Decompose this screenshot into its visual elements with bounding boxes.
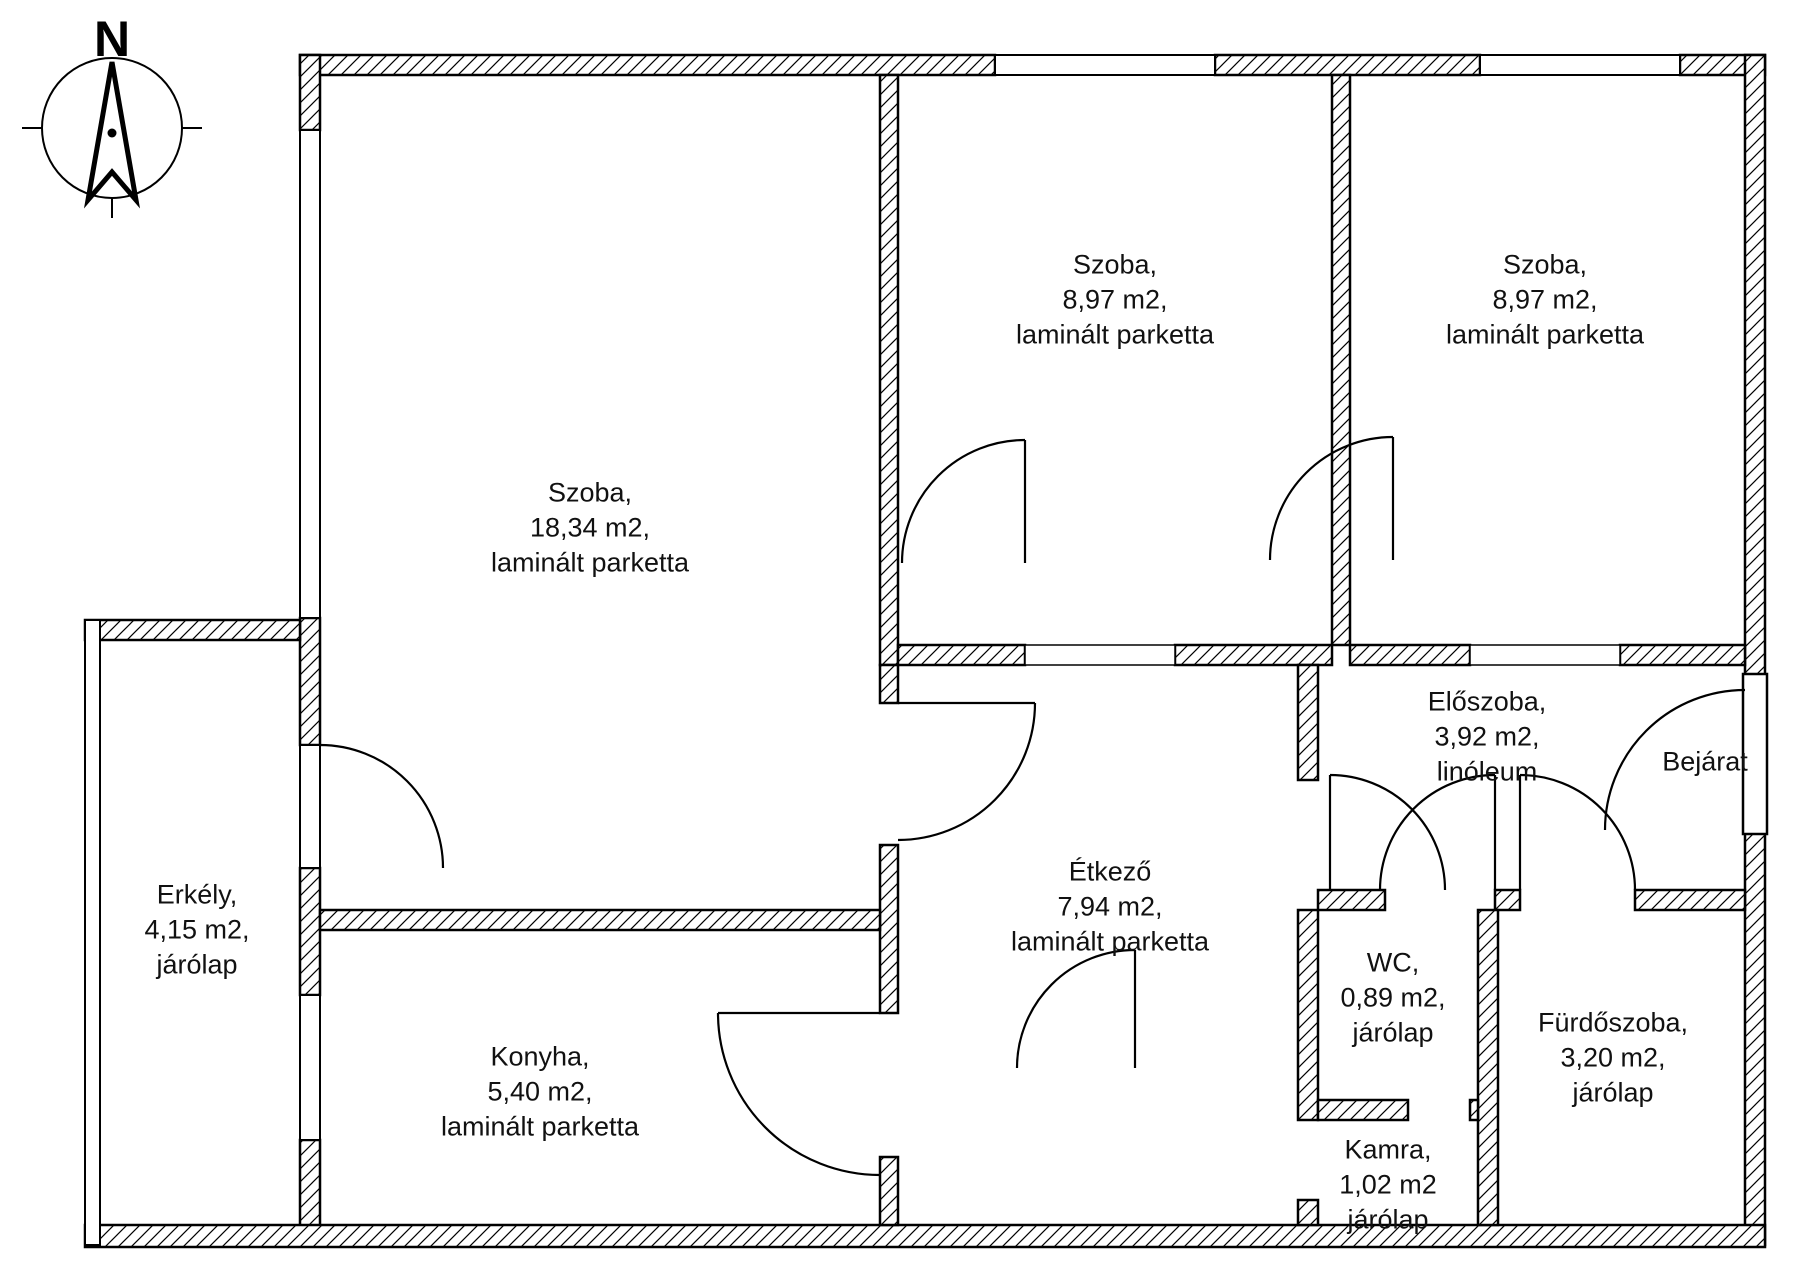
room-label-etkezo: Étkező 7,94 m2, laminált parketta [1011, 855, 1209, 960]
room-floor: járólap [1538, 1076, 1688, 1111]
room-floor: laminált parketta [491, 546, 689, 581]
room-area: 8,97 m2, [1446, 283, 1644, 318]
room-label-erkely: Erkély, 4,15 m2, járólap [144, 878, 249, 983]
compass-north-icon: N [22, 11, 202, 218]
room-area: 1,02 m2 [1339, 1168, 1437, 1203]
room-area: 4,15 m2, [144, 913, 249, 948]
room-name: WC, [1340, 946, 1445, 981]
room-label-eloszoba: Előszoba, 3,92 m2, linóleum [1428, 685, 1547, 790]
room-floor: laminált parketta [1011, 925, 1209, 960]
room-floor: laminált parketta [1446, 318, 1644, 353]
room-name: Szoba, [491, 476, 689, 511]
room-floor: linóleum [1428, 755, 1547, 790]
room-floor: járólap [1340, 1016, 1445, 1051]
room-label-szoba-large: Szoba, 18,34 m2, laminált parketta [491, 476, 689, 581]
room-name: Fürdőszoba, [1538, 1006, 1688, 1041]
room-area: 18,34 m2, [491, 511, 689, 546]
room-label-wc: WC, 0,89 m2, járólap [1340, 946, 1445, 1051]
room-name: Szoba, [1446, 248, 1644, 283]
room-label-kamra: Kamra, 1,02 m2 járólap [1339, 1133, 1437, 1238]
room-name: Előszoba, [1428, 685, 1547, 720]
room-label-konyha: Konyha, 5,40 m2, laminált parketta [441, 1040, 639, 1145]
room-floor: laminált parketta [1016, 318, 1214, 353]
floorplan-canvas: N Szoba, 18,34 m2, laminált parketta Szo… [0, 0, 1816, 1280]
room-label-furdoszoba: Fürdőszoba, 3,20 m2, járólap [1538, 1006, 1688, 1111]
room-name: Kamra, [1339, 1133, 1437, 1168]
room-area: 8,97 m2, [1016, 283, 1214, 318]
room-area: 0,89 m2, [1340, 981, 1445, 1016]
room-name: Szoba, [1016, 248, 1214, 283]
room-label-szoba-middle: Szoba, 8,97 m2, laminált parketta [1016, 248, 1214, 353]
room-floor: laminált parketta [441, 1110, 639, 1145]
room-floor: járólap [144, 948, 249, 983]
entrance-label: Bejárat [1662, 745, 1748, 780]
room-area: 3,92 m2, [1428, 720, 1547, 755]
room-name: Erkély, [144, 878, 249, 913]
compass-north-label: N [94, 11, 130, 67]
entrance-text: Bejárat [1662, 745, 1748, 780]
room-area: 5,40 m2, [441, 1075, 639, 1110]
room-name: Konyha, [441, 1040, 639, 1075]
room-floor: járólap [1339, 1203, 1437, 1238]
room-label-szoba-right: Szoba, 8,97 m2, laminált parketta [1446, 248, 1644, 353]
room-name: Étkező [1011, 855, 1209, 890]
room-area: 3,20 m2, [1538, 1041, 1688, 1076]
room-area: 7,94 m2, [1011, 890, 1209, 925]
